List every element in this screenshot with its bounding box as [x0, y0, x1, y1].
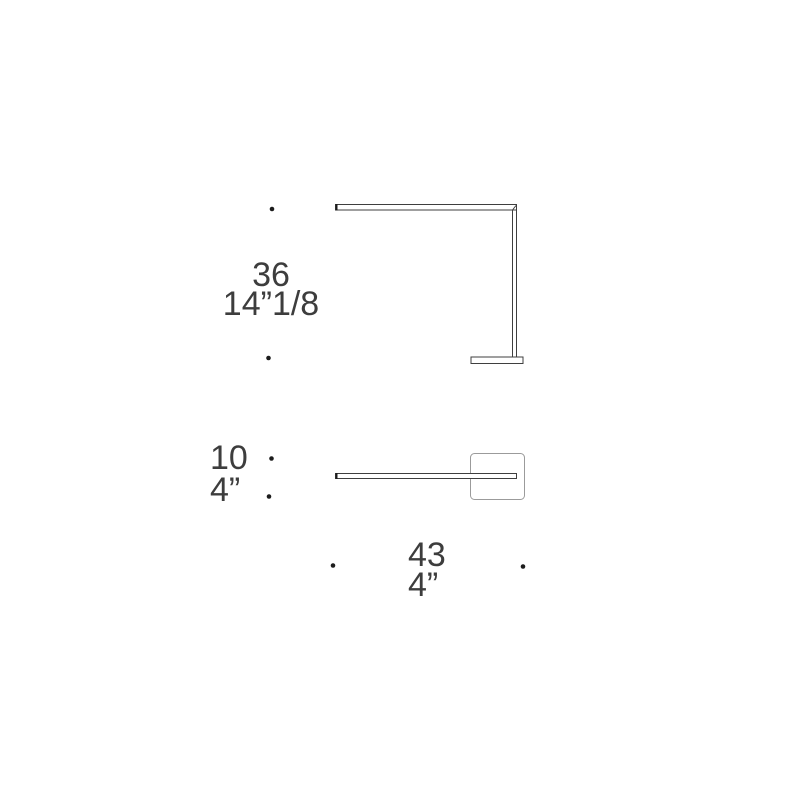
depth-dimension-label: 10 4”	[210, 442, 248, 506]
height-dim-bottom-dot	[266, 356, 271, 361]
depth-dim-bottom-dot	[267, 494, 272, 499]
lamp-base-side	[471, 357, 523, 364]
depth-cm-value: 10	[210, 442, 248, 474]
depth-inch-value: 4”	[210, 474, 248, 506]
lamp-top-view	[336, 454, 525, 500]
width-dim-right-dot	[521, 564, 526, 569]
dimension-diagram: 36 14”1/8 10 4” 43 4”	[0, 0, 800, 800]
height-inch-value: 14”1/8	[223, 290, 319, 319]
width-inch-value: 4”	[408, 570, 446, 600]
height-dim-top-dot	[270, 207, 275, 212]
lamp-arm-top	[336, 474, 517, 479]
width-dim-left-dot	[331, 563, 336, 568]
depth-dim-top-dot	[269, 456, 274, 461]
width-dimension-label: 43 4”	[408, 540, 446, 600]
height-dimension-label: 36 14”1/8	[223, 261, 319, 319]
lamp-arm	[336, 205, 517, 211]
lamp-side-view	[336, 204, 524, 364]
lamp-technical-drawing	[0, 0, 800, 800]
